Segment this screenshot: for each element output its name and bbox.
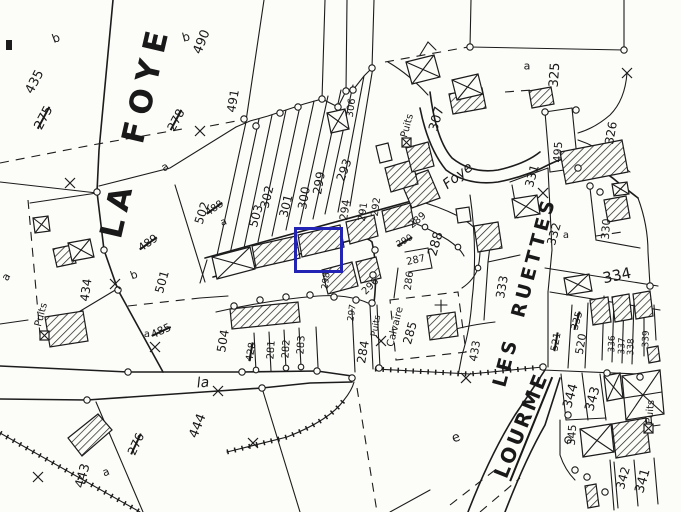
well-icon	[402, 138, 411, 147]
well-icon	[644, 424, 653, 433]
highlight-rectangle[interactable]	[294, 227, 343, 273]
calvary-cross-icon	[435, 300, 447, 312]
scan-mark	[6, 40, 12, 50]
cadastral-map: LA FOYELES RUETTESLOURMEFoyelab435275b49…	[0, 0, 681, 512]
well-icon	[40, 331, 49, 340]
